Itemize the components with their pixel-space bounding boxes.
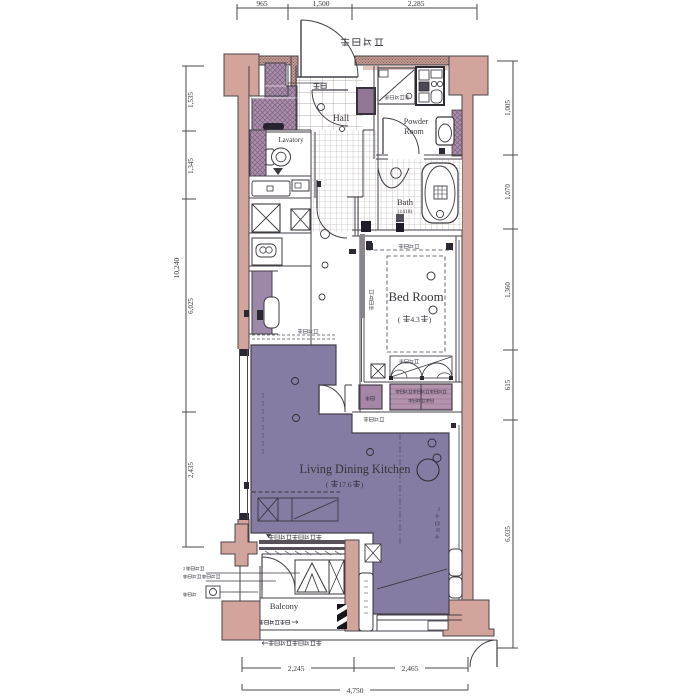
svg-text:Balcony: Balcony — [270, 601, 299, 611]
svg-text:1,535: 1,535 — [187, 92, 195, 108]
svg-text:Hall: Hall — [333, 114, 350, 124]
svg-text:Living Dining Kitchen: Living Dining Kitchen — [299, 462, 410, 476]
svg-text:(1418): (1418) — [398, 208, 413, 215]
svg-text:1,345: 1,345 — [187, 158, 195, 174]
svg-text:4.3: 4.3 — [410, 315, 420, 324]
svg-text:4,750: 4,750 — [347, 686, 364, 695]
svg-text:1,005: 1,005 — [504, 100, 512, 116]
svg-text:6,035: 6,035 — [504, 526, 512, 542]
svg-text:Room: Room — [404, 127, 424, 136]
svg-text:2,245: 2,245 — [288, 664, 305, 673]
svg-text:17.6: 17.6 — [338, 480, 351, 489]
svg-text:10,240: 10,240 — [172, 257, 181, 278]
svg-text:2,465: 2,465 — [402, 664, 419, 673]
svg-text:1,360: 1,360 — [504, 282, 512, 298]
svg-text:1,500: 1,500 — [313, 0, 330, 8]
svg-text:2,435: 2,435 — [187, 462, 195, 478]
svg-text:6,025: 6,025 — [187, 298, 195, 314]
svg-text:1,070: 1,070 — [504, 184, 512, 200]
svg-text:2: 2 — [183, 566, 185, 571]
svg-text:Powder: Powder — [404, 117, 429, 126]
svg-text:2,285: 2,285 — [408, 0, 425, 8]
svg-text:965: 965 — [256, 0, 268, 8]
svg-text:Lavatory: Lavatory — [278, 136, 304, 144]
svg-text:615: 615 — [504, 379, 512, 390]
svg-text:Bath: Bath — [397, 197, 414, 207]
svg-text:Bed Room: Bed Room — [388, 290, 443, 304]
